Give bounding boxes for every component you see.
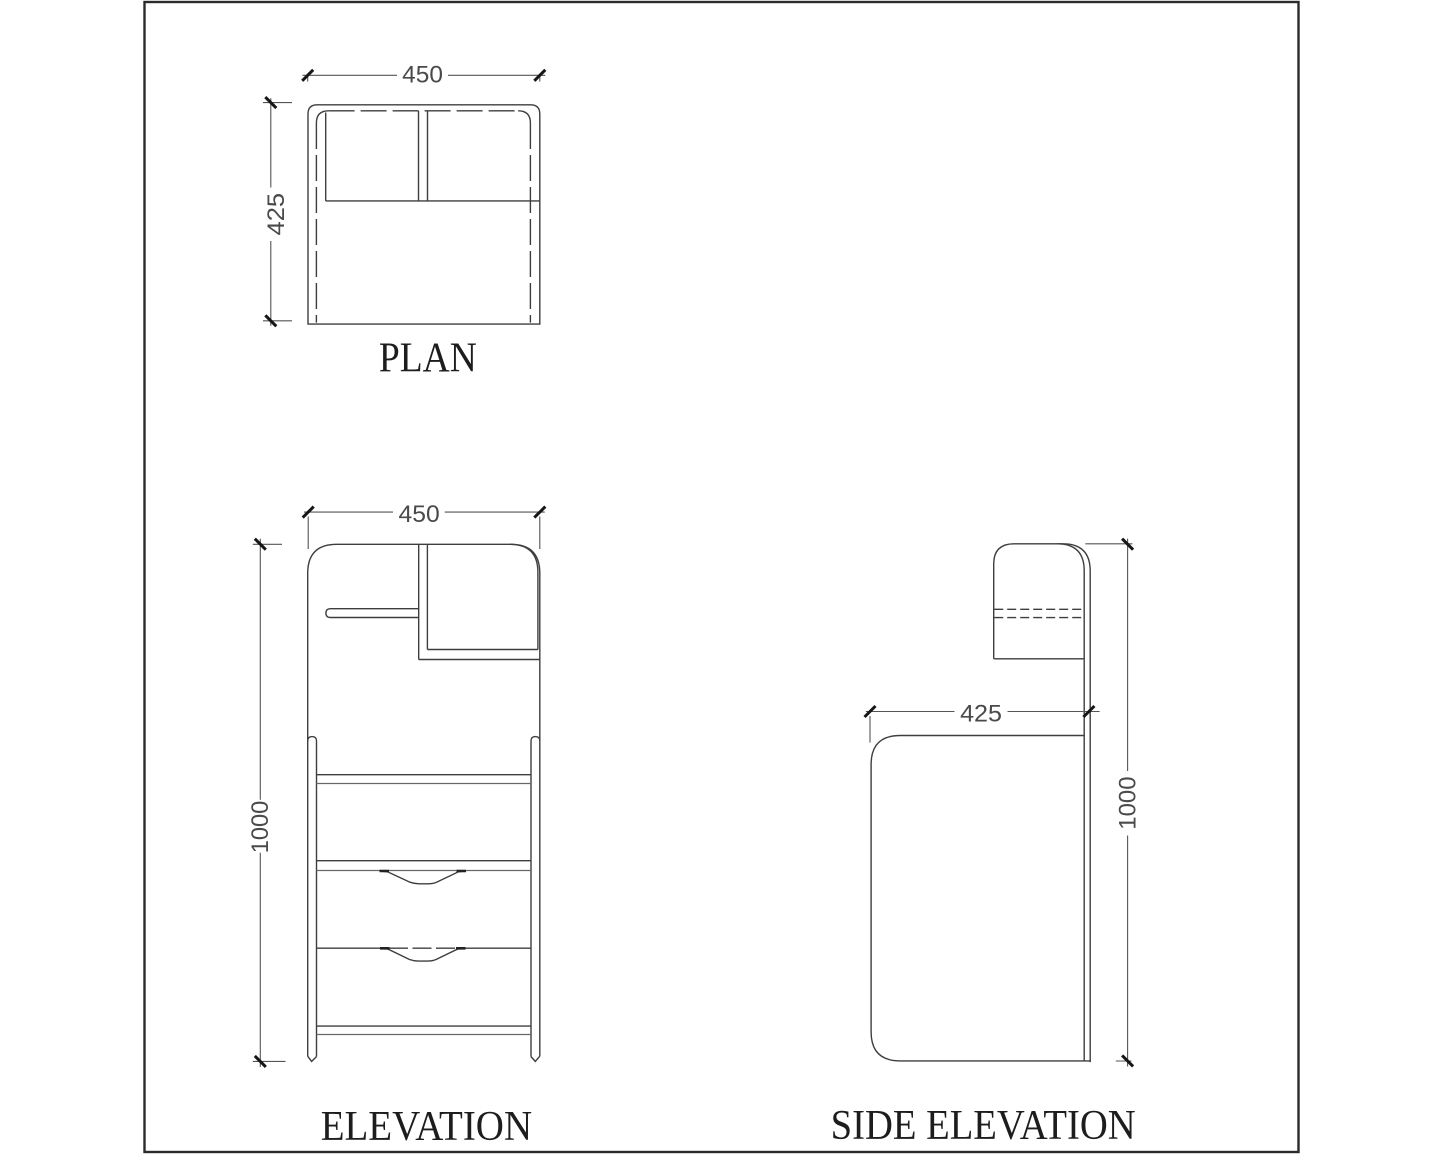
svg-text:1000: 1000 [247, 801, 274, 854]
svg-text:PLAN: PLAN [379, 335, 477, 381]
svg-text:1000: 1000 [1114, 777, 1141, 830]
svg-text:450: 450 [402, 62, 443, 89]
svg-text:425: 425 [263, 193, 290, 236]
svg-text:450: 450 [399, 501, 440, 528]
svg-text:ELEVATION: ELEVATION [321, 1104, 532, 1150]
svg-text:425: 425 [960, 700, 1002, 727]
svg-text:SIDE ELEVATION: SIDE ELEVATION [831, 1103, 1136, 1149]
